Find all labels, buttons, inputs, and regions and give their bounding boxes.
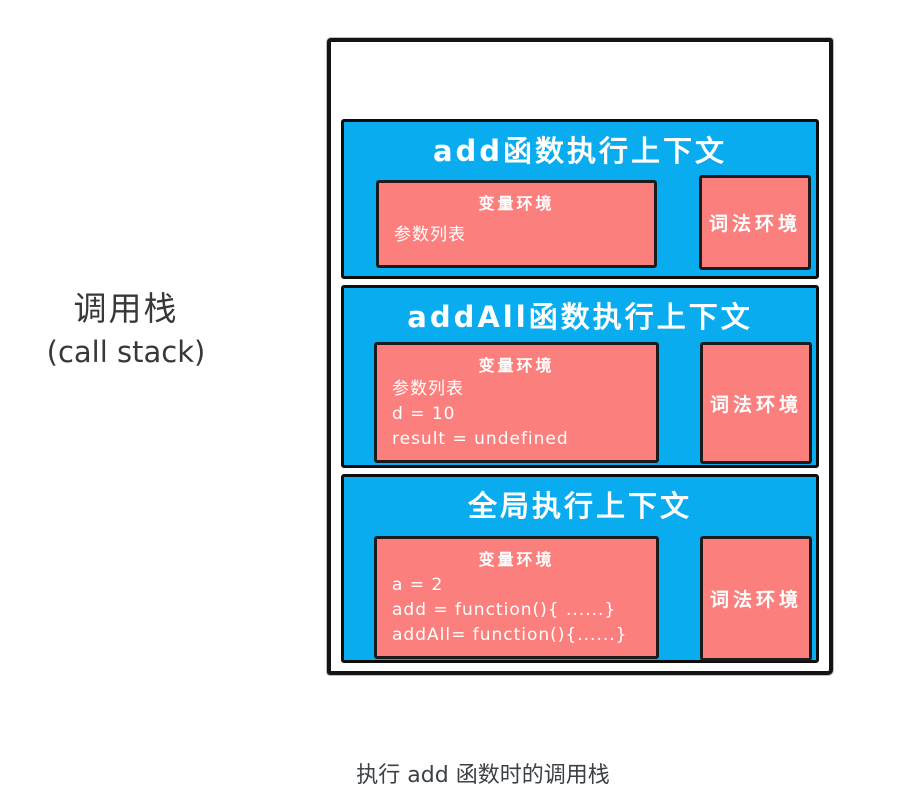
frame-title-add: add函数执行上下文: [344, 128, 816, 170]
variable-line: 参数列表: [394, 223, 648, 248]
variable-environment-lines: 参数列表 d = 10 result = undefined: [377, 377, 656, 460]
lexical-environment-box-global: 词法环境: [700, 536, 812, 661]
execution-context-stack: add函数执行上下文 变量环境 参数列表 词法环境 addAll函数执行上下文 …: [331, 42, 829, 671]
figure-caption: 执行 add 函数时的调用栈: [356, 757, 609, 789]
variable-environment-box-addall: 变量环境 参数列表 d = 10 result = undefined: [374, 342, 659, 463]
execution-context-frame-global: 全局执行上下文 变量环境 a = 2 add = function(){ ...…: [341, 474, 819, 663]
call-stack-label-en: (call stack): [0, 331, 252, 373]
variable-environment-box-global: 变量环境 a = 2 add = function(){ ......} add…: [374, 536, 659, 659]
frame-title-global: 全局执行上下文: [344, 483, 816, 525]
execution-context-frame-addall: addAll函数执行上下文 变量环境 参数列表 d = 10 result = …: [341, 285, 819, 468]
variable-environment-box-add: 变量环境 参数列表: [376, 180, 657, 268]
variable-line: d = 10: [392, 402, 650, 427]
variable-environment-label: 变量环境: [377, 539, 656, 570]
variable-environment-lines: 参数列表: [379, 223, 654, 265]
call-stack-label-zh: 调用栈: [0, 288, 252, 331]
execution-context-frame-add: add函数执行上下文 变量环境 参数列表 词法环境: [341, 119, 819, 279]
variable-line: a = 2: [392, 573, 650, 598]
variable-line: add = function(){ ......}: [392, 598, 650, 623]
variable-environment-lines: a = 2 add = function(){ ......} addAll= …: [377, 573, 656, 656]
variable-environment-label: 变量环境: [377, 345, 656, 376]
variable-line: 参数列表: [392, 377, 650, 402]
call-stack-container: add函数执行上下文 变量环境 参数列表 词法环境 addAll函数执行上下文 …: [327, 38, 833, 675]
call-stack-side-label: 调用栈 (call stack): [0, 288, 252, 373]
variable-environment-label: 变量环境: [379, 183, 654, 214]
frame-title-addall: addAll函数执行上下文: [344, 294, 816, 336]
lexical-environment-box-addall: 词法环境: [700, 342, 812, 464]
lexical-environment-box-add: 词法环境: [699, 175, 811, 270]
variable-line: result = undefined: [392, 427, 650, 452]
variable-line: addAll= function(){......}: [392, 623, 650, 648]
